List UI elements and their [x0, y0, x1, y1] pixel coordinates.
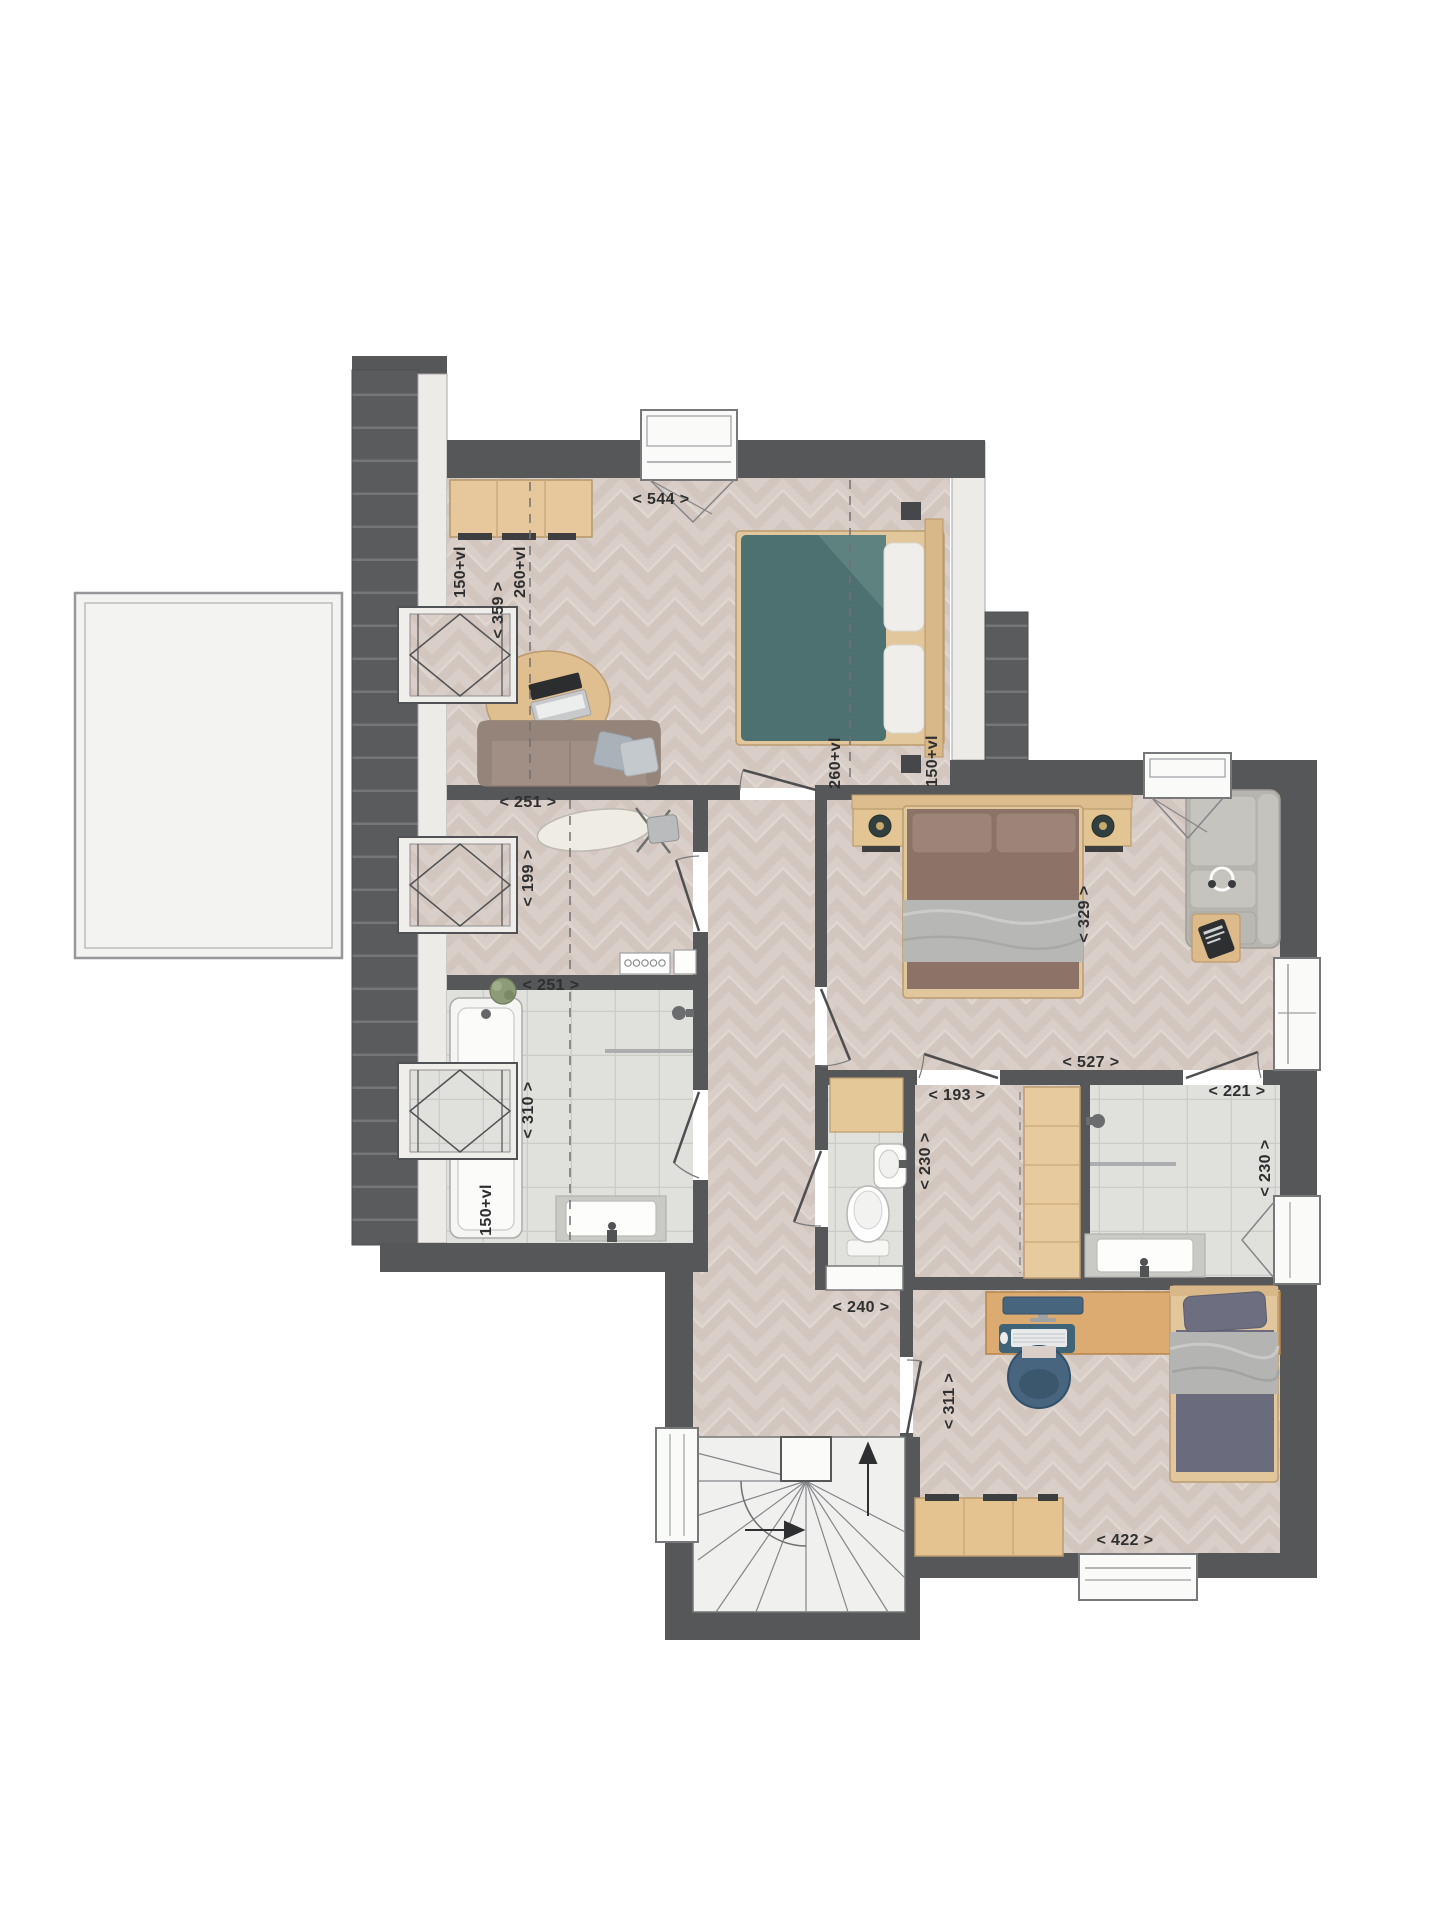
dim-closet-depth: < 230 > — [917, 1132, 935, 1189]
radiator — [620, 953, 670, 974]
side-table — [1192, 914, 1240, 962]
dim-closet-width: < 193 > — [928, 1087, 985, 1105]
dim-bedroom1-depth: < 359 > — [490, 581, 508, 638]
dim-bath1-width: < 251 > — [522, 977, 579, 995]
floor-plan — [0, 0, 1440, 1920]
nightstand-right — [1076, 809, 1131, 852]
dormer-window-3 — [398, 1063, 517, 1159]
dim-master-width: < 527 > — [1062, 1054, 1119, 1072]
dormer-window-2 — [398, 837, 517, 933]
toilet-icon — [847, 1186, 889, 1256]
window-bedroom3-bottom — [1079, 1554, 1197, 1600]
dim-bedroom1-width: < 544 > — [632, 491, 689, 509]
sideboard — [915, 1494, 1063, 1556]
dim-bedroom1-left-knee: 150+vl — [452, 546, 470, 598]
double-bed-brown — [903, 806, 1083, 998]
staircase — [693, 1437, 905, 1612]
duct-shaft — [674, 950, 696, 974]
plant-icon — [490, 978, 516, 1004]
desk-chair — [1008, 1346, 1070, 1408]
dim-master-depth: < 329 > — [1076, 885, 1094, 942]
dim-bedroom1-left-ridge: 260+vl — [512, 546, 530, 598]
dim-bedroom1-right-knee: 150+vl — [924, 735, 942, 787]
dim-bedroom1-right-ridge: 260+vl — [827, 737, 845, 789]
single-bed — [1170, 1286, 1278, 1482]
small-sink — [874, 1144, 907, 1188]
loveseat — [478, 721, 660, 786]
dim-bath2-depth: < 230 > — [1257, 1139, 1275, 1196]
mouse-icon — [1000, 1332, 1008, 1344]
washbasin — [556, 1196, 666, 1242]
dim-hall-width: < 240 > — [832, 1299, 889, 1317]
window-master-right — [1274, 958, 1320, 1070]
nightstand-left — [853, 809, 908, 852]
dim-bedroom3-width: < 422 > — [1096, 1532, 1153, 1550]
bath-faucet-icon — [481, 1009, 491, 1019]
dim-bath1-knee: 150+vl — [478, 1184, 496, 1236]
double-bed-teal — [736, 502, 944, 773]
stair-void — [781, 1437, 831, 1481]
roof-slope-right — [952, 442, 1028, 760]
floor-plan-page: < 544 > 150+vl 260+vl < 359 > 260+vl 150… — [0, 0, 1440, 1920]
toilet-counter — [830, 1078, 903, 1132]
window-stairwell-left — [656, 1428, 698, 1542]
dim-bath1-depth: < 310 > — [520, 1081, 538, 1138]
wall-lamp-icon — [901, 755, 921, 773]
dim-laundry-width: < 251 > — [499, 794, 556, 812]
window-toilet — [826, 1266, 903, 1290]
dim-bedroom3-depth: < 311 > — [941, 1373, 959, 1429]
roof-terrace — [75, 593, 342, 958]
dim-laundry-depth: < 199 > — [520, 849, 538, 906]
closet-furniture — [1020, 1087, 1080, 1278]
dim-bath2-width: < 221 > — [1208, 1083, 1265, 1101]
wardrobe — [1024, 1087, 1080, 1278]
wall-lamp-icon — [901, 502, 921, 520]
sideboard — [450, 480, 592, 540]
shower-head-icon — [672, 1006, 686, 1020]
washbasin — [1085, 1234, 1205, 1277]
